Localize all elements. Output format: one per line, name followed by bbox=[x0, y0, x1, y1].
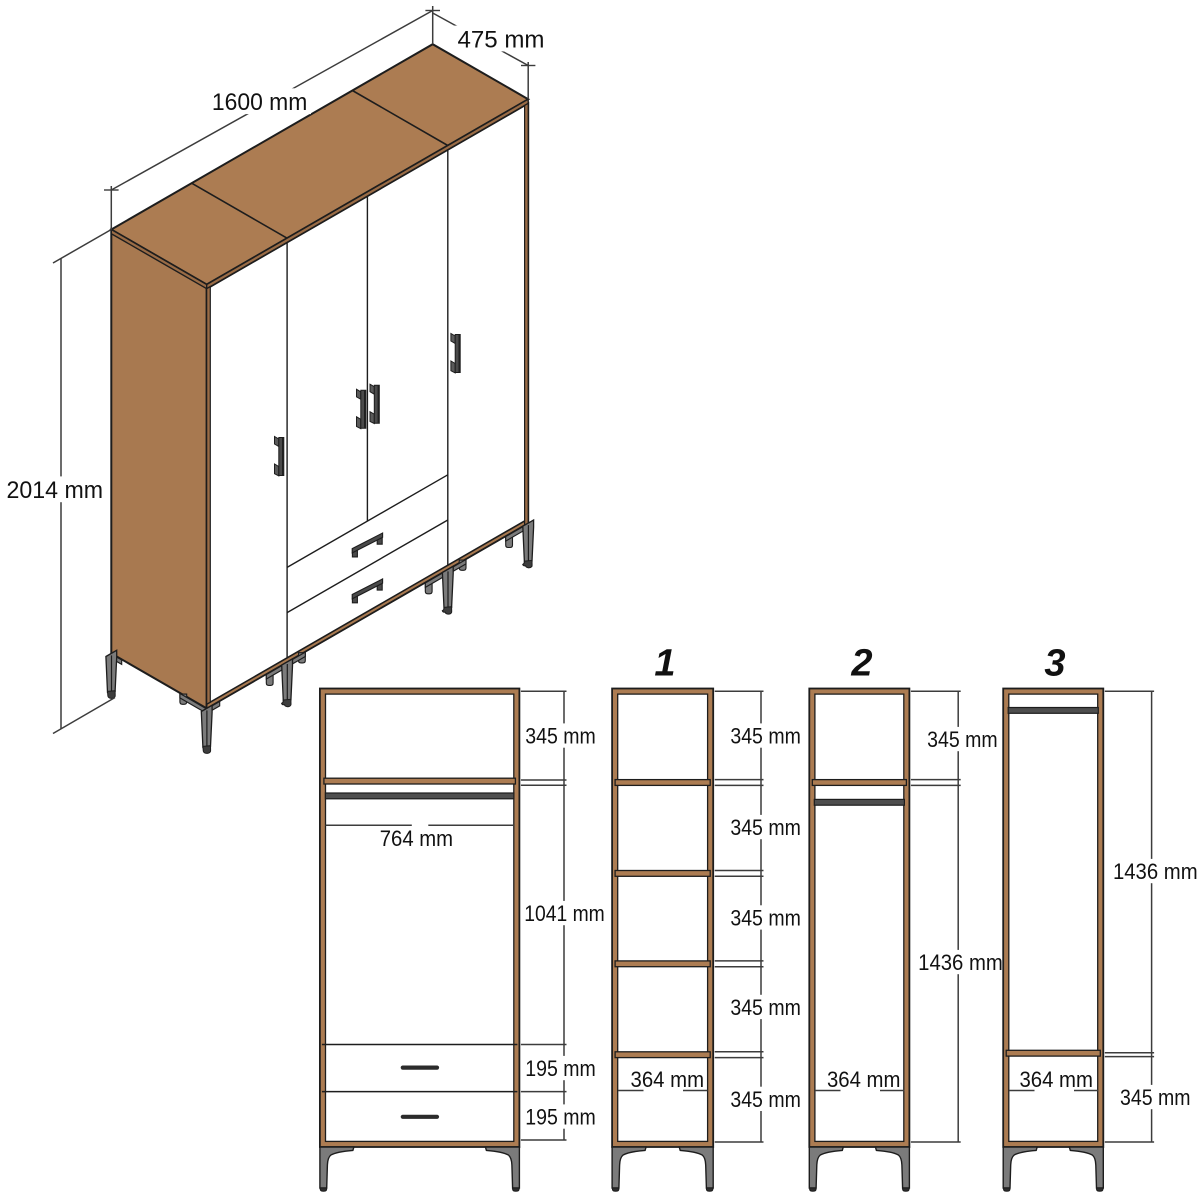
svg-text:1600 mm: 1600 mm bbox=[212, 89, 308, 116]
svg-text:345 mm: 345 mm bbox=[927, 727, 998, 752]
svg-text:345 mm: 345 mm bbox=[730, 724, 801, 749]
svg-text:1436 mm: 1436 mm bbox=[1113, 859, 1198, 884]
svg-text:195 mm: 195 mm bbox=[525, 1105, 596, 1130]
svg-text:1: 1 bbox=[654, 643, 675, 685]
svg-text:1436 mm: 1436 mm bbox=[918, 950, 1003, 975]
svg-text:345 mm: 345 mm bbox=[525, 724, 596, 749]
svg-text:345 mm: 345 mm bbox=[730, 1087, 801, 1112]
svg-text:345 mm: 345 mm bbox=[730, 815, 801, 840]
svg-text:3: 3 bbox=[1044, 643, 1065, 685]
svg-text:2: 2 bbox=[850, 643, 872, 685]
svg-text:2014 mm: 2014 mm bbox=[7, 477, 104, 504]
svg-text:764 mm: 764 mm bbox=[380, 826, 453, 851]
svg-text:345 mm: 345 mm bbox=[1120, 1085, 1191, 1110]
svg-text:1041 mm: 1041 mm bbox=[524, 901, 605, 926]
svg-text:475 mm: 475 mm bbox=[458, 26, 545, 53]
svg-text:195 mm: 195 mm bbox=[525, 1056, 596, 1081]
svg-text:364 mm: 364 mm bbox=[631, 1067, 705, 1092]
svg-text:364 mm: 364 mm bbox=[827, 1067, 901, 1092]
svg-text:345 mm: 345 mm bbox=[730, 995, 801, 1020]
svg-text:364 mm: 364 mm bbox=[1019, 1067, 1093, 1092]
svg-text:345 mm: 345 mm bbox=[730, 906, 801, 931]
